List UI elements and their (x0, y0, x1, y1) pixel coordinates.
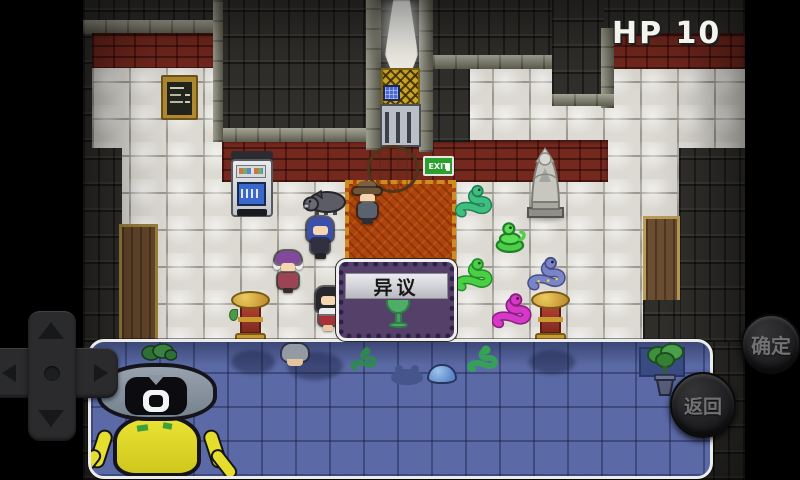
pedestal-leaf (229, 309, 238, 321)
game-screen: EXIT (0, 0, 800, 480)
npc-feet (283, 288, 293, 293)
gate-bars (385, 112, 416, 143)
npc-legs (323, 325, 333, 331)
dialog-box[interactable]: 异议 (336, 259, 457, 341)
npc-granny-purple-hat (273, 251, 303, 297)
cyclops-body (113, 415, 201, 477)
cyclops-body-mark (163, 422, 173, 429)
vending-items (239, 168, 263, 174)
snake-magenta (492, 291, 532, 331)
dpad-down-button[interactable] (38, 410, 64, 427)
stone-beam-pocket (552, 94, 614, 106)
dialog-title-band: 异议 (345, 273, 448, 299)
npc-gray-head-in-water (282, 344, 308, 368)
npc-face (321, 296, 336, 305)
goblet-base (389, 322, 408, 328)
vending-slot (237, 209, 267, 216)
stone-beam-under-center (213, 128, 373, 142)
confirm-button[interactable]: 确定 (741, 314, 800, 374)
dpad-right-button[interactable] (94, 364, 108, 382)
back-button-label: 返回 (684, 392, 722, 419)
praying-statue (522, 146, 569, 219)
frog-eye (411, 365, 419, 373)
blackboard-line (185, 94, 190, 96)
vending-screen-pixels (241, 189, 261, 198)
stone-column-left (213, 0, 223, 142)
lattice-blue-panel (383, 85, 400, 101)
npc-body (358, 203, 377, 218)
blackboard-line (170, 94, 181, 96)
npc-face (281, 263, 295, 272)
door-right (643, 216, 680, 304)
npc-adventurer (352, 181, 382, 227)
blackboard-line (170, 87, 184, 89)
blackboard-line (185, 101, 190, 103)
blue-slime (427, 364, 457, 384)
npc-face (287, 359, 303, 366)
snake-lime-coiled (493, 220, 529, 253)
stone-beam-top-left (83, 20, 213, 34)
pedestal-top (231, 291, 270, 309)
stone-beam-right (433, 55, 555, 69)
vending-machine (231, 151, 273, 222)
water-reflection (529, 350, 575, 374)
npc-blue-hair-girl (305, 216, 335, 262)
exit-sign: EXIT (423, 156, 454, 176)
metal-gate (380, 104, 421, 147)
frog-silhouette (391, 365, 423, 385)
npc-feet (362, 218, 373, 224)
snake-teal (455, 184, 493, 219)
pedestal-trim (238, 317, 263, 322)
confirm-button-label: 确定 (751, 330, 791, 359)
right-wall-dark (679, 148, 745, 342)
gold-pedestal-left (231, 291, 270, 342)
npc-face (360, 194, 375, 203)
npc-face (313, 226, 328, 235)
wall-below-right-door (643, 300, 680, 342)
menu-blackboard (161, 75, 198, 120)
pedestal-top (531, 291, 570, 309)
npc-body (311, 239, 329, 253)
water-plant-left (141, 343, 177, 361)
hp-display: HP 10 (612, 16, 752, 51)
back-button[interactable]: 返回 (670, 372, 736, 438)
water-reflection (231, 350, 275, 374)
pedestal-trim (538, 317, 563, 322)
wall-pocket-top-right (552, 0, 604, 100)
cyclops-eye-inner (149, 395, 163, 407)
dpad-center-dot (44, 366, 60, 381)
snake-dark-water (347, 346, 381, 372)
dialog-title: 异议 (373, 273, 419, 300)
snake-dark-water (465, 344, 501, 374)
frog-eye (395, 365, 403, 373)
gold-pedestal-right (531, 291, 570, 342)
exit-runner-icon (446, 163, 450, 171)
npc-body (278, 273, 298, 288)
blackboard-line (170, 101, 183, 103)
dpad[interactable] (0, 300, 125, 450)
boar-sprite (302, 189, 348, 217)
water-pool-panel (88, 339, 713, 479)
dpad-up-button[interactable] (38, 322, 64, 339)
dpad-left-button[interactable] (2, 364, 16, 382)
snake-blue-spotted (527, 256, 567, 292)
npc-feet (315, 253, 326, 259)
snake-lime (455, 257, 493, 293)
red-brick-left (92, 33, 214, 69)
